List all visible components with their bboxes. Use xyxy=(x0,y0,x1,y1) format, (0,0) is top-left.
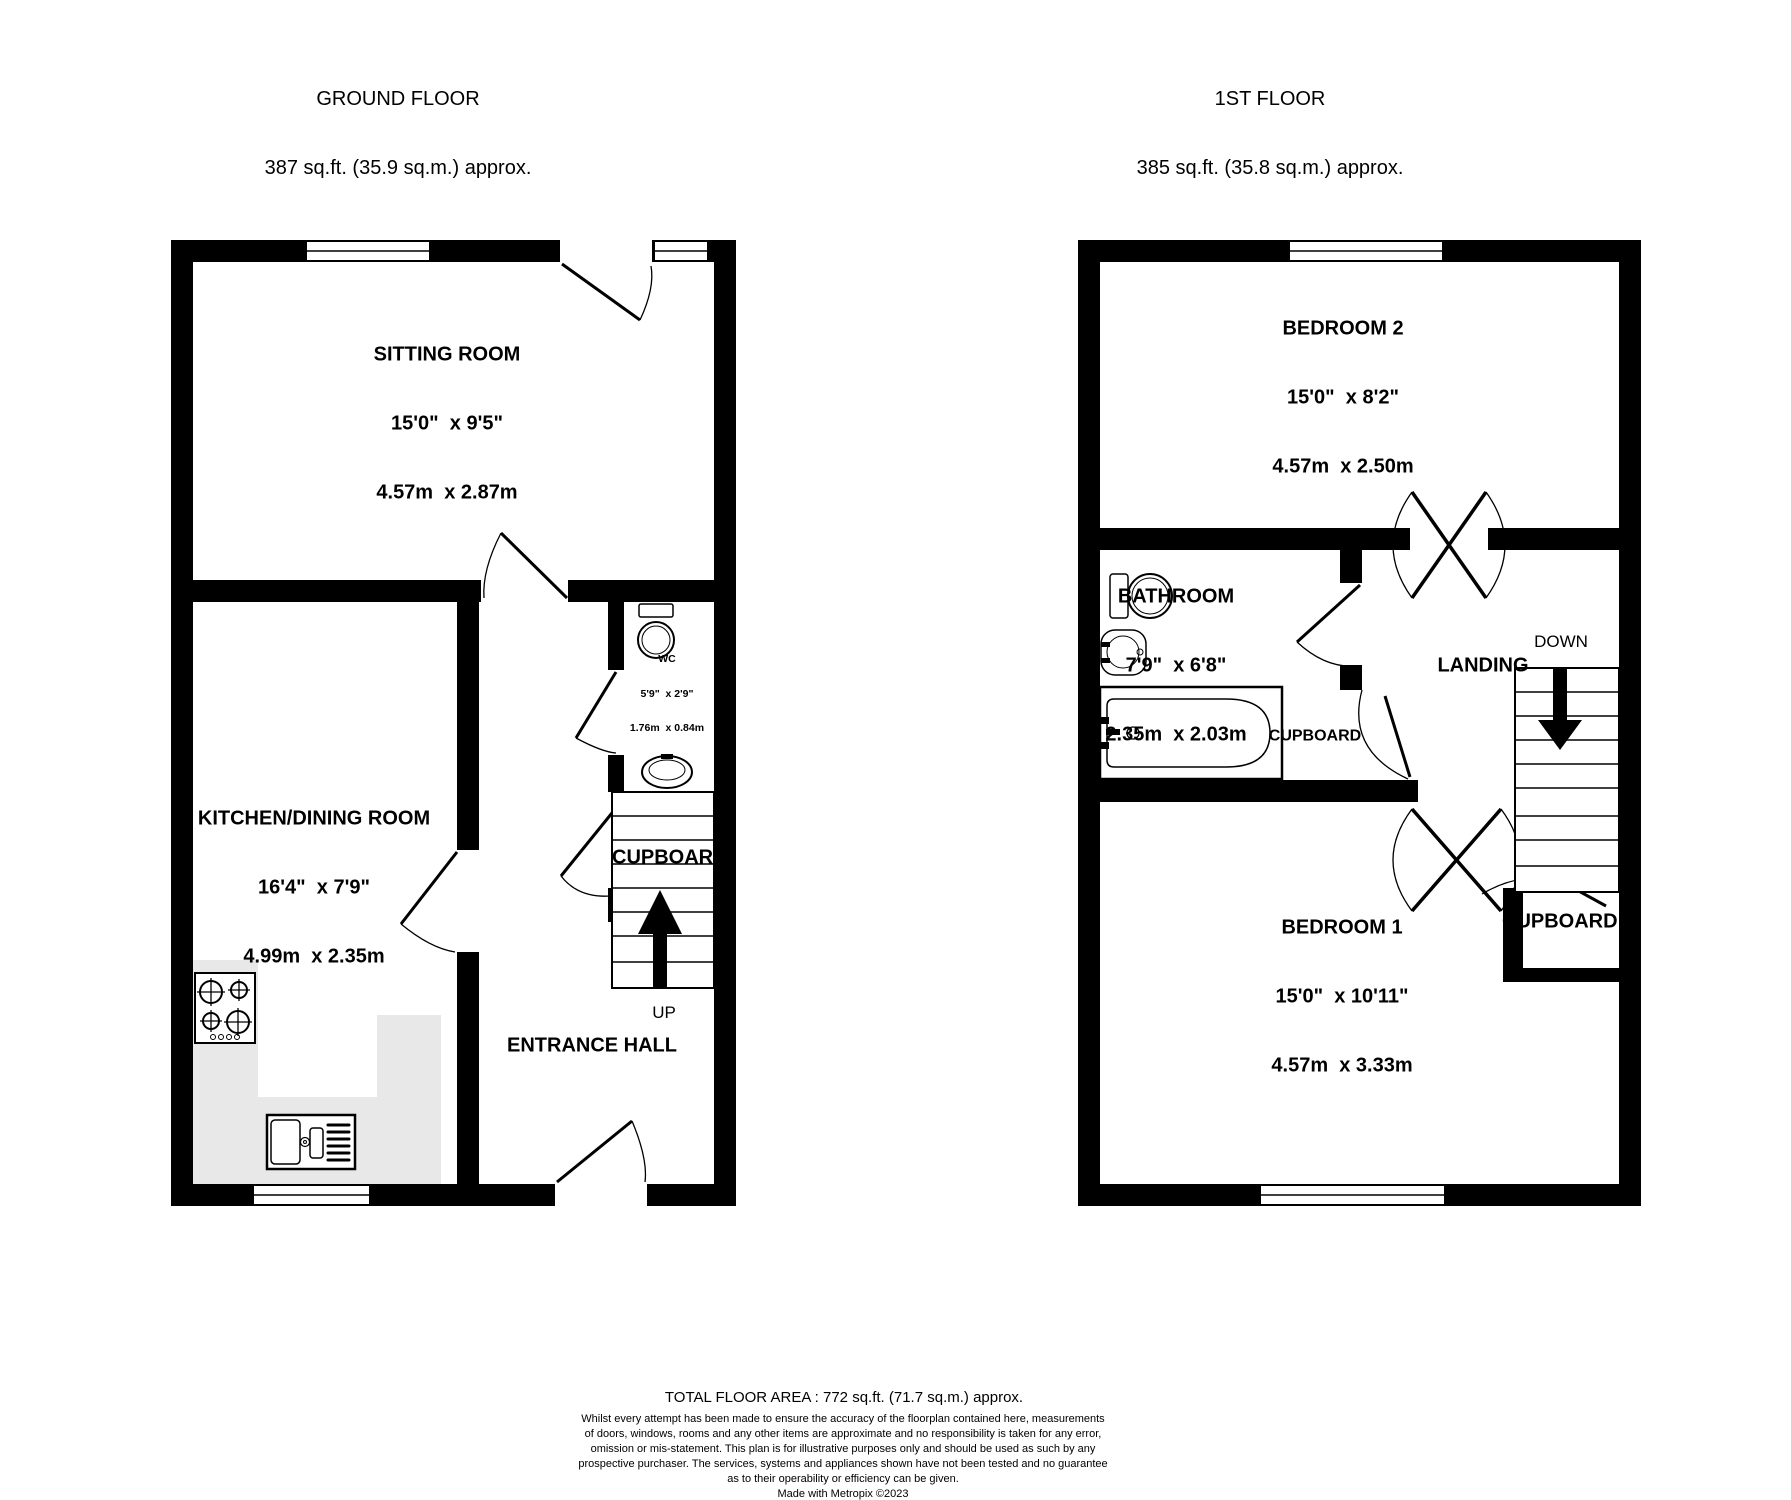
door-swing-understairs-cupboard xyxy=(561,808,616,896)
cupboard-label-middle: CUPBOARD xyxy=(1269,725,1361,748)
room-size-metric: 4.57m x 2.87m xyxy=(374,482,521,505)
door-swing-bathroom xyxy=(1297,585,1360,666)
staircase-up xyxy=(612,792,714,988)
room-name: BEDROOM 1 xyxy=(1271,917,1412,940)
landing-label: LANDING xyxy=(1437,655,1528,678)
bathroom-label: BATHROOM 7'9" x 6'8" 2.35m x 2.03m xyxy=(1105,540,1246,793)
room-size-imperial: 15'0" x 10'11" xyxy=(1271,986,1412,1009)
window-icon xyxy=(306,241,430,261)
door-swing-top xyxy=(560,240,652,320)
total-floor-area: TOTAL FLOOR AREA : 772 sq.ft. (71.7 sq.m… xyxy=(665,1389,1023,1406)
room-size-imperial: 7'9" x 6'8" xyxy=(1105,655,1246,678)
floor-name: 1ST FLOOR xyxy=(1137,88,1404,111)
cupboard-label-ground: CUPBOARD xyxy=(612,847,728,870)
bedroom1-label: BEDROOM 1 15'0" x 10'11" 4.57m x 3.33m xyxy=(1271,871,1412,1124)
window-icon xyxy=(1289,241,1443,261)
wc-basin-icon xyxy=(642,754,692,788)
door-swing-wc xyxy=(576,672,616,753)
room-name: KITCHEN/DINING ROOM xyxy=(198,808,430,831)
disclaimer-line: prospective purchaser. The services, sys… xyxy=(578,1457,1107,1472)
room-size-imperial: 15'0" x 9'5" xyxy=(374,413,521,436)
entrance-hall-label: ENTRANCE HALL xyxy=(507,1035,677,1058)
first-floor-title: 1ST FLOOR 385 sq.ft. (35.8 sq.m.) approx… xyxy=(1137,42,1404,226)
floor-name: GROUND FLOOR xyxy=(265,88,532,111)
disclaimer: Whilst every attempt has been made to en… xyxy=(578,1412,1107,1500)
door-swing-front-entrance xyxy=(555,1121,647,1206)
staircase-down xyxy=(1515,668,1619,892)
room-size-metric: 2.35m x 2.03m xyxy=(1105,724,1246,747)
room-size-metric: 4.57m x 3.33m xyxy=(1271,1055,1412,1078)
room-size-imperial: 15'0" x 8'2" xyxy=(1272,387,1413,410)
window-icon xyxy=(253,1185,370,1205)
stairs-up-label: UP xyxy=(652,1003,676,1023)
window-icon xyxy=(1260,1185,1445,1205)
room-name: BEDROOM 2 xyxy=(1272,318,1413,341)
floor-area: 385 sq.ft. (35.8 sq.m.) approx. xyxy=(1137,157,1404,180)
metropix-credit: Made with Metropix ©2023 xyxy=(578,1487,1107,1500)
room-size-metric: 4.99m x 2.35m xyxy=(198,946,430,969)
room-size-metric: 1.76m x 0.84m xyxy=(630,723,704,735)
kitchen-dining-room-label: KITCHEN/DINING ROOM 16'4" x 7'9" 4.99m x… xyxy=(198,762,430,1015)
door-swing-cupboard-middle xyxy=(1359,690,1410,779)
bedroom2-label: BEDROOM 2 15'0" x 8'2" 4.57m x 2.50m xyxy=(1272,272,1413,525)
disclaimer-line: Whilst every attempt has been made to en… xyxy=(578,1412,1107,1427)
room-name: WC xyxy=(630,654,704,666)
kitchen-sink-icon xyxy=(267,1115,355,1169)
stairs-down-label: DOWN xyxy=(1534,632,1588,652)
room-size-imperial: 5'9" x 2'9" xyxy=(630,688,704,700)
disclaimer-line: as to their operability or efficiency ca… xyxy=(578,1472,1107,1487)
wc-label: WC 5'9" x 2'9" 1.76m x 0.84m xyxy=(630,631,704,758)
room-size-metric: 4.57m x 2.50m xyxy=(1272,456,1413,479)
floor-area: 387 sq.ft. (35.9 sq.m.) approx. xyxy=(265,157,532,180)
room-name: BATHROOM xyxy=(1105,586,1246,609)
disclaimer-line: of doors, windows, rooms and any other i… xyxy=(578,1427,1107,1442)
ground-floor-title: GROUND FLOOR 387 sq.ft. (35.9 sq.m.) app… xyxy=(265,42,532,226)
cupboard-label-lower: CUPBOARD xyxy=(1502,911,1618,934)
disclaimer-line: omission or mis-statement. This plan is … xyxy=(578,1442,1107,1457)
room-size-imperial: 16'4" x 7'9" xyxy=(198,877,430,900)
floorplan-canvas: GROUND FLOOR 387 sq.ft. (35.9 sq.m.) app… xyxy=(0,0,1791,1500)
room-name: SITTING ROOM xyxy=(374,344,521,367)
window-icon xyxy=(654,241,708,261)
sitting-room-label: SITTING ROOM 15'0" x 9'5" 4.57m x 2.87m xyxy=(374,298,521,551)
